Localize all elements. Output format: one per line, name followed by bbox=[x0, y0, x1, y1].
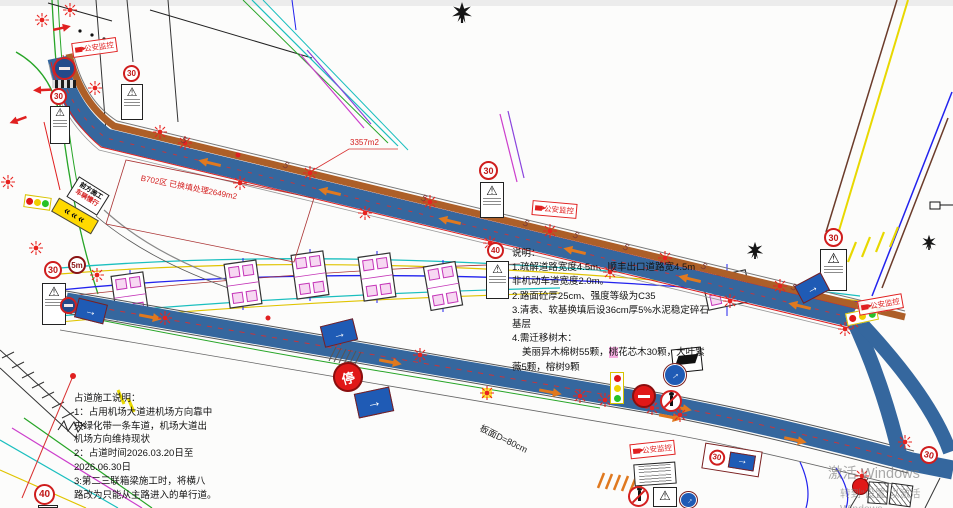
green-light-icon bbox=[614, 395, 621, 402]
no-pedestrian-sign bbox=[660, 390, 682, 412]
speed-limit-30-sign: 30 bbox=[708, 448, 726, 466]
speed-limit-value: 30 bbox=[712, 452, 722, 463]
construction-warning-sign: ⚠ bbox=[480, 182, 504, 218]
clearance-5m-sign: 5m bbox=[68, 256, 86, 274]
yellow-light-icon bbox=[614, 385, 621, 392]
speed-limit-40-sign: 40 bbox=[487, 242, 504, 259]
speed-limit-value: 30 bbox=[828, 233, 838, 243]
notes-line: 非机动车道宽度2.0m。 bbox=[512, 275, 709, 289]
speed-limit-30-sign: 30 bbox=[824, 228, 843, 247]
area-label-3357: 3357m2 bbox=[350, 138, 379, 147]
stop-sign-text: 停 bbox=[339, 366, 356, 388]
notes-line: 基层 bbox=[512, 318, 709, 332]
sign-fine-print bbox=[483, 198, 500, 207]
speed-limit-value: 30 bbox=[48, 265, 58, 275]
tree-line-pre: 美丽异木棉树55颗， bbox=[522, 347, 609, 358]
construction-warning-icon: ⚠ bbox=[827, 251, 840, 265]
red-light-icon bbox=[25, 197, 33, 205]
speed-limit-30-sign: 30 bbox=[50, 88, 67, 105]
construction-warning-icon: ⚠ bbox=[55, 108, 65, 119]
notes-line: 1.疏解道路宽度4.5m、顺丰出口道路宽4.5m bbox=[512, 261, 709, 275]
yellow-light-icon bbox=[34, 199, 42, 207]
construction-warning-icon: ⚠ bbox=[486, 184, 498, 197]
clearance-value: 5m bbox=[71, 261, 83, 270]
construction-warning-icon: ⚠ bbox=[48, 285, 60, 298]
notes-tree-line: 美丽异木棉树55颗，桃花芯木30颗，大叶紫 bbox=[512, 346, 709, 360]
windows-activation-watermark-sub: 转到“设置”以激活 Windows。 bbox=[840, 486, 953, 508]
occupation-title: 占道施工说明： bbox=[74, 392, 217, 406]
occupation-line: 3:第二三联箱梁施工时，将横八 bbox=[74, 475, 217, 489]
tree-line-post: 花芯木30颗，大叶紫 bbox=[618, 347, 705, 358]
construction-warning-icon: ⚠ bbox=[492, 263, 503, 275]
arrow-right-icon: → bbox=[365, 393, 383, 413]
camera-icon bbox=[861, 304, 869, 310]
occupation-line: 1：占用机场大道进机场方向靠中 bbox=[74, 406, 217, 420]
speed-limit-value: 30 bbox=[127, 69, 136, 78]
traffic-signal bbox=[610, 372, 624, 404]
camera-icon bbox=[633, 448, 640, 454]
sign-fine-print bbox=[53, 120, 67, 129]
speed-limit-value: 40 bbox=[491, 246, 500, 255]
occupation-notes-block: 占道施工说明： 1：占用机场大道进机场方向靠中 央绿化带一条车道，机场大道出 机… bbox=[74, 392, 217, 502]
direction-arrow-sign: → bbox=[728, 452, 756, 472]
sign-text-plate bbox=[52, 80, 76, 88]
construction-warning-icon: ⚠ bbox=[127, 86, 138, 98]
monitor-text: 公安监控 bbox=[869, 296, 900, 312]
monitor-text: 公安监控 bbox=[544, 203, 575, 217]
red-light-icon bbox=[848, 314, 856, 322]
occupation-line: 2：占道时间2026.03.20日至 bbox=[74, 447, 217, 461]
speed-limit-30-sign: 30 bbox=[44, 261, 62, 279]
information-sign bbox=[633, 462, 676, 487]
occupation-line: 路改为只能从主路进入的单行道。 bbox=[74, 489, 217, 503]
construction-warning-sign: ⚠ bbox=[653, 487, 677, 507]
notes-title: 说明： bbox=[512, 247, 709, 261]
arrow-right-icon: → bbox=[803, 279, 820, 297]
no-entry-sign bbox=[53, 57, 76, 80]
speed-limit-value: 30 bbox=[923, 449, 935, 461]
camera-icon bbox=[75, 47, 83, 53]
construction-warning-sign: ⚠ bbox=[50, 106, 70, 144]
construction-warning-sign: ⚠ bbox=[121, 84, 143, 120]
no-entry-bar-icon bbox=[59, 67, 71, 70]
direction-circle-sign: → bbox=[680, 492, 697, 508]
monitor-text: 公安监控 bbox=[641, 442, 672, 456]
no-entry-bar-icon bbox=[638, 395, 650, 398]
speed-limit-40-sign: 40 bbox=[34, 484, 55, 505]
arrow-right-icon: → bbox=[83, 303, 98, 319]
sign-fine-print bbox=[124, 99, 140, 108]
tree-line-highlight: 桃 bbox=[609, 347, 619, 358]
speed-limit-30-sign: 30 bbox=[123, 65, 140, 82]
arrow-right-icon: → bbox=[736, 454, 749, 469]
construction-warning-icon: ⚠ bbox=[659, 489, 671, 502]
cad-drawing-canvas[interactable]: 5 5 5 5 5 5 5 5 30 ⚠ 30 ⚠ 公安监控 30 ⚠ 公安监控… bbox=[0, 0, 953, 508]
no-pedestrian-sign bbox=[628, 486, 649, 507]
occupation-line: 央绿化带一条车道，机场大道出 bbox=[74, 420, 217, 434]
occupation-line: 2026.06.30日 bbox=[74, 461, 217, 475]
sign-fine-print bbox=[489, 276, 505, 285]
speed-limit-value: 30 bbox=[483, 166, 493, 176]
notes-text-block: 说明： 1.疏解道路宽度4.5m、顺丰出口道路宽4.5m 非机动车道宽度2.0m… bbox=[512, 247, 709, 375]
sign-fine-print bbox=[824, 266, 844, 275]
arrow-right-icon: → bbox=[331, 324, 347, 342]
curved-arrow-icon: → bbox=[682, 494, 694, 506]
monitor-text: 公安监控 bbox=[83, 39, 114, 54]
occupation-line: 机场方向维持现状 bbox=[74, 433, 217, 447]
notes-line: 3.清表、软基换填后设36cm厚5%水泥稳定碎石 bbox=[512, 304, 709, 318]
construction-warning-sign: ⚠ bbox=[486, 261, 509, 299]
camera-icon bbox=[535, 205, 542, 211]
green-light-icon bbox=[42, 200, 50, 208]
notes-line: 薇5颗，榕树9颗 bbox=[512, 361, 709, 375]
sign-fine-print bbox=[639, 474, 672, 485]
speed-limit-value: 30 bbox=[54, 92, 63, 101]
speed-limit-value: 40 bbox=[39, 489, 50, 500]
no-entry-bar-icon bbox=[64, 304, 72, 307]
speed-limit-30-sign: 30 bbox=[479, 161, 498, 180]
red-light-icon bbox=[614, 375, 621, 382]
no-entry-red-sign bbox=[632, 384, 656, 408]
notes-line: 4.需迁移树木： bbox=[512, 332, 709, 346]
windows-activation-watermark: 激活 Windows bbox=[828, 462, 920, 483]
notes-line: 2.路面砼厚25cm、强度等级为C35 bbox=[512, 290, 709, 304]
